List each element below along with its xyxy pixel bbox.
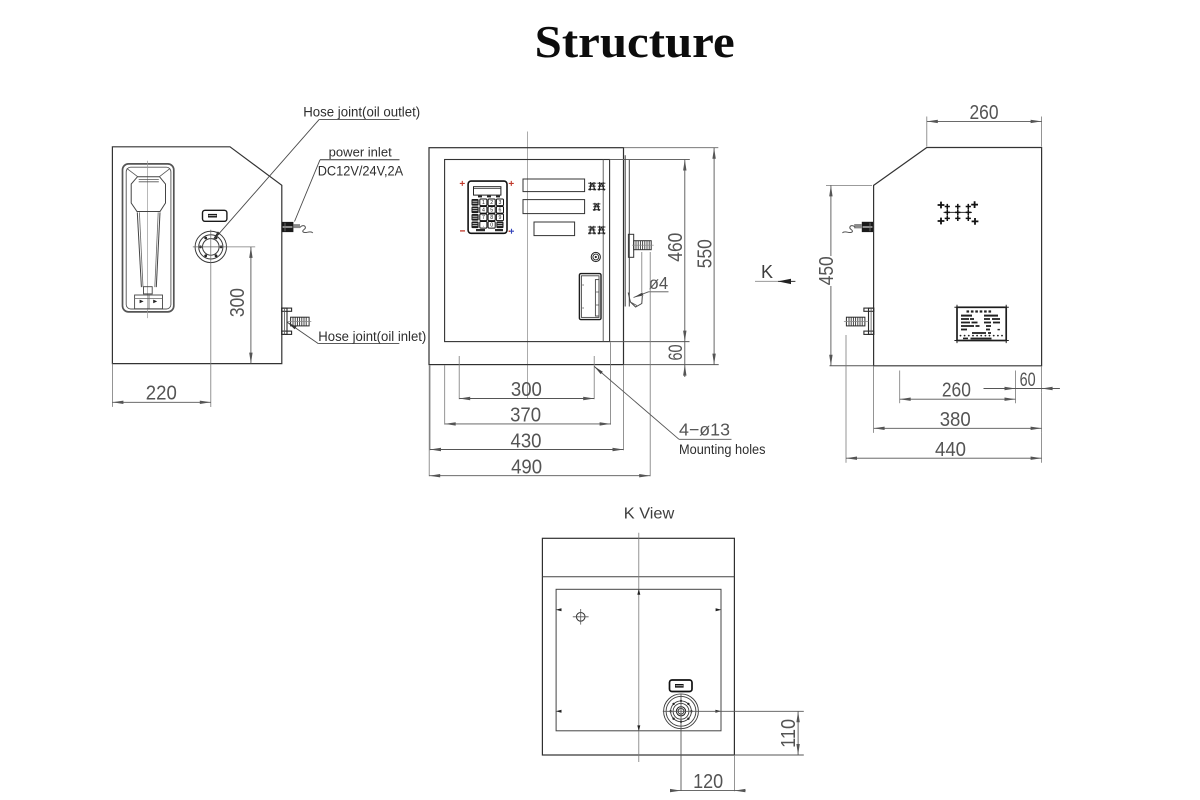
svg-text:1: 1 xyxy=(482,200,485,206)
svg-text:450: 450 xyxy=(816,256,838,285)
svg-text:490: 490 xyxy=(511,456,542,478)
svg-text:300: 300 xyxy=(511,379,542,401)
svg-text:9: 9 xyxy=(499,215,502,221)
svg-text:Hose joint(oil outlet): Hose joint(oil outlet) xyxy=(303,104,420,119)
svg-text:2: 2 xyxy=(490,200,493,206)
svg-text:370: 370 xyxy=(510,405,541,427)
svg-text:440: 440 xyxy=(935,439,966,461)
svg-text:8: 8 xyxy=(490,215,493,221)
svg-text:4: 4 xyxy=(482,208,485,214)
svg-text:ø4: ø4 xyxy=(649,273,669,293)
svg-text:K View: K View xyxy=(624,506,675,523)
svg-text:120: 120 xyxy=(693,771,723,793)
svg-text:7: 7 xyxy=(482,215,485,221)
svg-text:.: . xyxy=(483,223,484,229)
svg-text:Hose joint(oil inlet): Hose joint(oil inlet) xyxy=(318,329,426,344)
svg-text:220: 220 xyxy=(146,382,177,404)
svg-text:260: 260 xyxy=(970,102,999,124)
svg-text:Mounting holes: Mounting holes xyxy=(679,442,766,457)
svg-text:power inlet: power inlet xyxy=(329,145,393,159)
svg-text:4−ø13: 4−ø13 xyxy=(679,420,730,440)
svg-text:110: 110 xyxy=(778,719,800,748)
svg-text:260: 260 xyxy=(942,380,971,402)
svg-text:430: 430 xyxy=(511,430,542,452)
svg-text:DC12V/24V,2A: DC12V/24V,2A xyxy=(318,164,404,179)
svg-text:300: 300 xyxy=(227,288,249,317)
svg-text:550: 550 xyxy=(694,239,716,268)
svg-text:Structure: Structure xyxy=(535,16,735,67)
svg-text:60: 60 xyxy=(666,345,687,361)
svg-text:K: K xyxy=(761,262,773,282)
svg-text:380: 380 xyxy=(940,409,971,431)
svg-text:3: 3 xyxy=(499,200,502,206)
svg-text:460: 460 xyxy=(665,233,687,262)
svg-text:60: 60 xyxy=(1020,370,1036,391)
svg-text:0: 0 xyxy=(490,223,493,229)
svg-text:6: 6 xyxy=(499,208,502,214)
svg-text:5: 5 xyxy=(490,208,493,214)
